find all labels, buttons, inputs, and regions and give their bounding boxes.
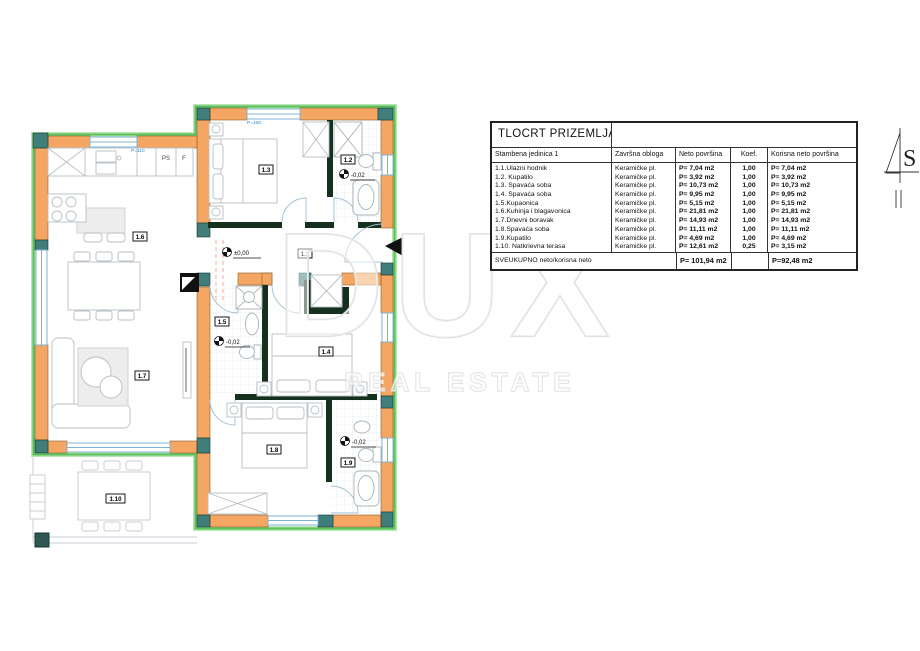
room-name: 1.3. Spavaća soba	[492, 182, 611, 191]
room-label-1-7: 1.7	[135, 371, 149, 380]
col-header-useful: Korisna neto površina	[768, 147, 856, 162]
room-name: 1.2. Kupatilo	[492, 174, 611, 183]
finish: Keramičke pl.	[612, 217, 675, 226]
area-table: TLOCRT PRIZEMLJA Stambena jedinica 1 Zav…	[490, 121, 858, 271]
sink-19	[354, 421, 370, 433]
finish: Keramičke pl.	[612, 182, 675, 191]
useful-area: P= 3,15 m2	[768, 243, 856, 252]
floor-plan-drawing: PS F P=110 P=100 ±0,00 -0,02 -0,02 -0,02…	[0, 0, 920, 651]
column-finishes: Keramičke pl. Keramičke pl. Keramičke pl…	[612, 162, 676, 252]
kitchen-counter	[48, 148, 193, 176]
room-name: 1.7.Dnevni boravak	[492, 217, 611, 226]
room-name: 1.4. Spavaća soba	[492, 191, 611, 200]
useful-area: P= 9,95 m2	[768, 191, 856, 200]
shower-15	[236, 286, 262, 309]
svg-text:1.9: 1.9	[344, 460, 353, 467]
net-area: P= 12,61 m2	[676, 243, 730, 252]
room-name: 1.8.Spavaća soba	[492, 226, 611, 235]
window-bedroom18-south	[268, 516, 318, 525]
column-room-names: 1.1.Ulazni hodnik 1.2. Kupatilo 1.3. Spa…	[492, 162, 612, 252]
koef: 1,00	[731, 191, 767, 200]
svg-text:±0,00: ±0,00	[234, 251, 250, 257]
svg-text:1.10: 1.10	[109, 496, 122, 503]
useful-area: P= 4,69 m2	[768, 235, 856, 244]
koef: 1,00	[731, 217, 767, 226]
room-label-1-8: 1.8	[267, 445, 281, 454]
coffee-table	[78, 348, 128, 406]
parapet-label-kitchen: P=110	[131, 148, 145, 154]
svg-text:1.5: 1.5	[218, 319, 227, 326]
table-title-empty-cell	[612, 123, 856, 147]
room-label-1-2: 1.2	[341, 155, 355, 164]
svg-text:1.7: 1.7	[138, 373, 147, 380]
finish: Keramičke pl.	[612, 235, 675, 244]
finish: Keramičke pl.	[612, 165, 675, 174]
sink-15	[246, 313, 259, 335]
koef: 1,00	[731, 174, 767, 183]
table-title: TLOCRT PRIZEMLJA	[492, 123, 612, 147]
koef: 1,00	[731, 235, 767, 244]
total-koef-empty	[731, 252, 768, 269]
net-area: P= 9,95 m2	[676, 191, 730, 200]
kitchen-island	[48, 194, 125, 242]
useful-area: P= 3,92 m2	[768, 174, 856, 183]
svg-text:1.3: 1.3	[262, 167, 271, 174]
col-header-koef: Koef.	[731, 147, 768, 162]
window-bedroom13-north	[247, 109, 300, 119]
terrace-post	[35, 533, 49, 547]
total-useful: P=92,48 m2	[768, 252, 856, 269]
window-bath12-east	[382, 155, 393, 175]
room-label-1-9: 1.9	[341, 458, 355, 467]
finish: Keramičke pl.	[612, 174, 675, 183]
useful-area: P= 14,93 m2	[768, 217, 856, 226]
north-arrow: S	[884, 128, 919, 208]
koef: 1,00	[731, 182, 767, 191]
appliance-label-f: F	[182, 156, 186, 162]
finish: Keramičke pl.	[612, 208, 675, 217]
shower-12	[334, 122, 362, 157]
room-label-1-5: 1.5	[215, 317, 229, 326]
room-label-1-10: 1.10	[106, 494, 125, 503]
net-area: P= 3,92 m2	[676, 174, 730, 183]
net-area: P= 21,81 m2	[676, 208, 730, 217]
koef: 1,00	[731, 165, 767, 174]
room-name: 1.9.Kupatilo	[492, 235, 611, 244]
koef: 1,00	[731, 208, 767, 217]
useful-area: P= 11,11 m2	[768, 226, 856, 235]
col-header-finish: Završna obloga	[612, 147, 676, 162]
room-name: 1.1.Ulazni hodnik	[492, 165, 611, 174]
room-name: 1.6.Kuhinja i blagavonica	[492, 208, 611, 217]
tv-bench	[183, 342, 191, 398]
svg-text:1.8: 1.8	[270, 447, 279, 454]
bed-18	[227, 403, 322, 468]
room-name: 1.5.Kupaonica	[492, 200, 611, 209]
total-net: P= 101,94 m2	[676, 252, 731, 269]
svg-text:-0,02: -0,02	[226, 340, 240, 346]
net-area: P= 10,73 m2	[676, 182, 730, 191]
finish: Keramičke pl.	[612, 243, 675, 252]
watermark-line2: REAL ESTATE	[344, 367, 575, 397]
room-label-1-3: 1.3	[259, 165, 273, 174]
room-label-1-6: 1.6	[133, 232, 147, 241]
net-area: P= 14,93 m2	[676, 217, 730, 226]
finish: Keramičke pl.	[612, 191, 675, 200]
window-kitchen-north	[90, 137, 137, 147]
svg-text:1.6: 1.6	[136, 234, 145, 241]
finish: Keramičke pl.	[612, 226, 675, 235]
net-area: P= 7,04 m2	[676, 165, 730, 174]
col-header-unit: Stambena jedinica 1	[492, 147, 612, 162]
col-header-net: Neto površina	[676, 147, 731, 162]
electrical-panel-icon	[180, 273, 199, 292]
dining-table	[68, 252, 140, 320]
net-area: P= 4,69 m2	[676, 235, 730, 244]
north-arrow-triangle	[886, 133, 900, 173]
wardrobe-18	[208, 493, 267, 514]
svg-text:-0,02: -0,02	[352, 440, 366, 446]
terrace-steps	[30, 475, 45, 519]
useful-area: P= 10,73 m2	[768, 182, 856, 191]
floor-plan-page: PS F P=110 P=100 ±0,00 -0,02 -0,02 -0,02…	[0, 0, 920, 651]
column-net-areas: P= 7,04 m2 P= 3,92 m2 P= 10,73 m2 P= 9,9…	[676, 162, 731, 252]
useful-area: P= 21,81 m2	[768, 208, 856, 217]
window-bath19-east	[382, 438, 393, 462]
bathtub-19	[354, 471, 379, 506]
north-label: S	[903, 146, 916, 172]
total-label: SVEUKUPNO neto/korisna neto	[492, 252, 676, 269]
wardrobe-13	[303, 122, 329, 157]
koef: 1,00	[731, 200, 767, 209]
toilet-19	[359, 447, 382, 462]
column-useful-areas: P= 7,04 m2 P= 3,92 m2 P= 10,73 m2 P= 9,9…	[768, 162, 856, 252]
net-area: P= 5,15 m2	[676, 200, 730, 209]
koef: 0,25	[731, 243, 767, 252]
parapet-label-bedroom: P=100	[247, 120, 261, 126]
appliance-label-ps: PS	[162, 156, 170, 162]
useful-area: P= 7,04 m2	[768, 165, 856, 174]
net-area: P= 11,11 m2	[676, 226, 730, 235]
useful-area: P= 5,15 m2	[768, 200, 856, 209]
finish: Keramičke pl.	[612, 200, 675, 209]
room-name: 1.10. Natkrievna terasa	[492, 243, 611, 252]
window-living-west	[36, 250, 47, 345]
koef: 1,00	[731, 226, 767, 235]
svg-text:-0,02: -0,02	[351, 173, 365, 179]
level-marker-hallway: ±0,00	[223, 248, 262, 259]
window-living-south	[67, 443, 170, 452]
svg-text:1.2: 1.2	[344, 157, 353, 164]
column-koef: 1,00 1,00 1,00 1,00 1,00 1,00 1,00 1,00 …	[731, 162, 768, 252]
